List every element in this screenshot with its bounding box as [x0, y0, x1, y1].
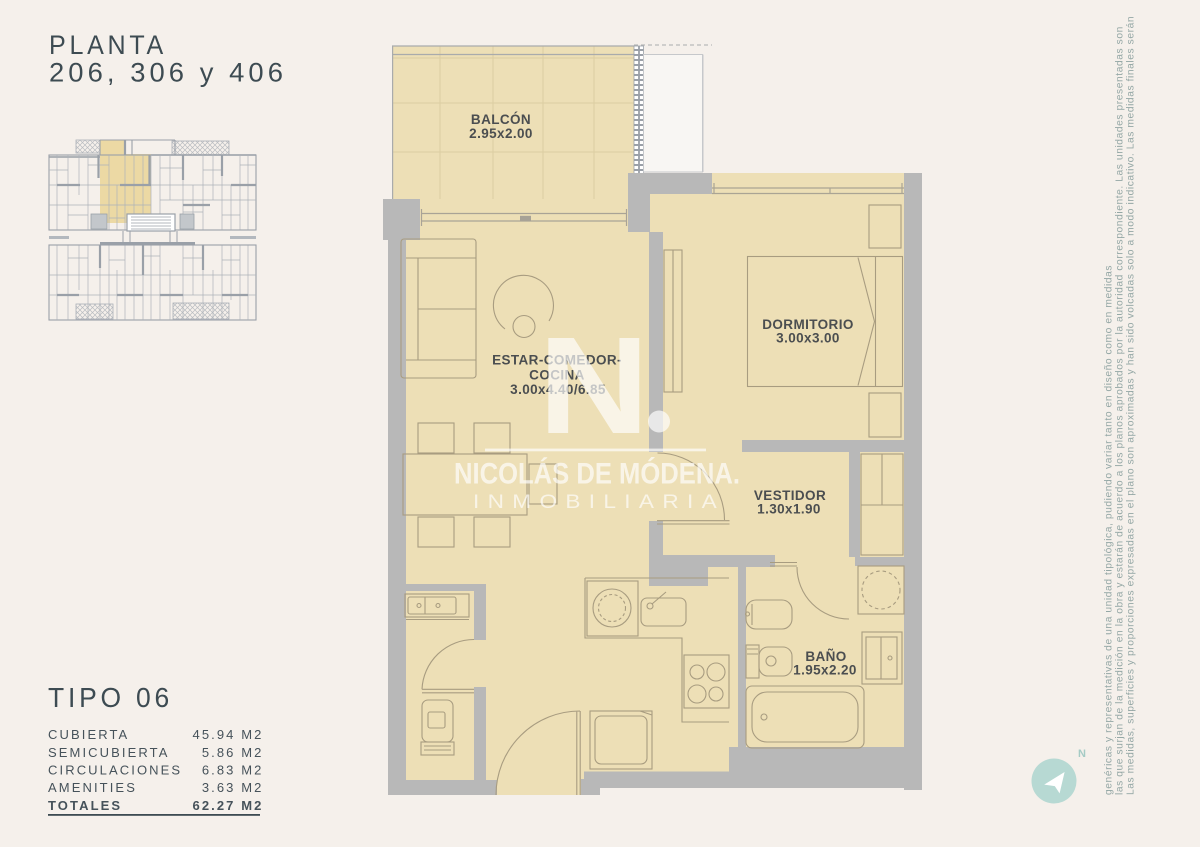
svg-text:CIRCULACIONES: CIRCULACIONES: [48, 763, 182, 778]
svg-text:TIPO 06: TIPO 06: [48, 682, 173, 713]
svg-text:N: N: [1078, 748, 1086, 760]
svg-text:TOTALES: TOTALES: [48, 798, 122, 813]
svg-text:las que surjan de la medición: las que surjan de la medición en la obra…: [1115, 26, 1126, 795]
svg-text:N: N: [538, 309, 650, 463]
svg-text:Las medidas, superficies y pro: Las medidas, superficies y proporciones …: [1126, 16, 1137, 795]
svg-text:PLANTA: PLANTA: [49, 30, 167, 60]
svg-text:6.83 M2: 6.83 M2: [202, 763, 264, 778]
svg-text:206, 306 y 406: 206, 306 y 406: [49, 58, 287, 88]
svg-text:AMENITIES: AMENITIES: [48, 780, 137, 795]
svg-text:1.30x1.90: 1.30x1.90: [757, 502, 821, 517]
svg-text:NICOLÁS DE MÓDENA.: NICOLÁS DE MÓDENA.: [454, 457, 740, 491]
svg-text:45.94 M2: 45.94 M2: [192, 727, 263, 742]
svg-text:SEMICUBIERTA: SEMICUBIERTA: [48, 745, 170, 760]
svg-text:genéricas y representativas de: genéricas y representativas de una unida…: [1104, 265, 1115, 795]
svg-text:BALCÓN: BALCÓN: [471, 112, 531, 127]
svg-text:5.86 M2: 5.86 M2: [202, 745, 264, 760]
svg-text:2.95x2.00: 2.95x2.00: [469, 126, 533, 141]
svg-text:3.63 M2: 3.63 M2: [202, 780, 264, 795]
svg-text:1.95x2.20: 1.95x2.20: [793, 663, 857, 678]
svg-text:3.00x3.00: 3.00x3.00: [776, 331, 840, 346]
svg-text:INMOBILIARIA: INMOBILIARIA: [473, 492, 725, 513]
svg-text:CUBIERTA: CUBIERTA: [48, 727, 129, 742]
svg-text:62.27 M2: 62.27 M2: [192, 798, 263, 813]
